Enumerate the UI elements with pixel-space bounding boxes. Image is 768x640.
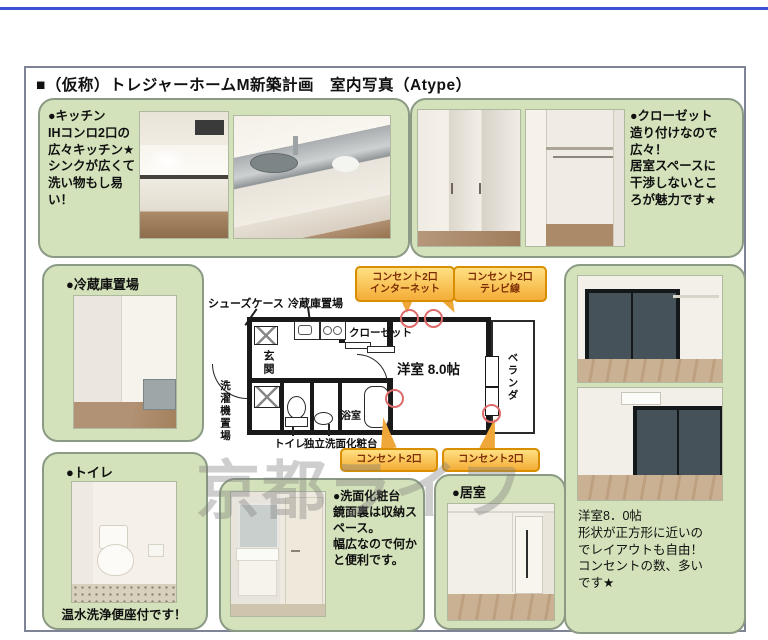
- closet-door-edge: [613, 110, 624, 246]
- hanger-rod: [553, 156, 618, 158]
- burner: [323, 326, 332, 335]
- floor: [231, 604, 325, 616]
- room-size-label: 洋室 8.0帖: [397, 358, 460, 378]
- burner: [333, 326, 342, 335]
- range-hood: [195, 120, 225, 135]
- photo-closet-open: [526, 110, 624, 246]
- outlet-mark: [400, 309, 419, 328]
- floor: [418, 231, 520, 246]
- toilet-caption: 温水洗浄便座付です！: [48, 604, 200, 623]
- kitchen-stove: [320, 321, 346, 340]
- photo-fridge-spot: [74, 296, 176, 428]
- floor: [72, 584, 176, 602]
- closet-plan-label: クローゼット: [349, 325, 412, 340]
- sink: [250, 153, 299, 173]
- photo-kitchen-sink: [234, 116, 390, 238]
- photo-washbasin: [231, 492, 325, 616]
- toilet-label: ●トイレ: [66, 462, 113, 481]
- floor: [578, 475, 722, 500]
- door-handle: [451, 183, 453, 194]
- paper-holder: [148, 544, 164, 557]
- vanity-bowl: [314, 412, 333, 425]
- photo-room-window-b: [578, 388, 722, 500]
- faucet: [293, 136, 298, 156]
- toilet-bowl: [287, 396, 306, 419]
- ceiling-line: [448, 511, 554, 513]
- toilet-base: [285, 417, 308, 427]
- washer-label: 洗濯機置場: [218, 380, 233, 443]
- shoe-cabinet: [254, 326, 278, 345]
- washbasin-panel: ●洗面化粧台 鏡面裏は収納ス ペース。 幅広なので何か と便利です。: [219, 478, 425, 632]
- wall: [280, 383, 284, 430]
- window: [633, 406, 722, 483]
- floor: [578, 359, 722, 382]
- closet-slide-door: [367, 346, 395, 353]
- photo-toilet: [72, 482, 176, 602]
- wall: [310, 383, 314, 430]
- flyer-frame: ■（仮称）トレジャーホームM新築計画 室内写真（Atype） ●キッチン IHコ…: [24, 66, 746, 632]
- living-panel: ●居室: [434, 474, 566, 630]
- bath-label: 浴室: [341, 407, 361, 422]
- fridge-panel: ●冷蔵庫置場: [42, 264, 204, 442]
- door-handle: [291, 550, 299, 552]
- door: [515, 516, 544, 595]
- living-label: ●居室: [452, 482, 486, 501]
- window-mullion: [631, 293, 633, 361]
- floor: [448, 594, 554, 620]
- kitchen-sink: [294, 321, 320, 340]
- window-mullion: [677, 410, 679, 479]
- callout-outlet-right: コンセント2口: [442, 448, 540, 472]
- toilet-plan-label: トイレ: [274, 436, 306, 451]
- photo-kitchen-full: [140, 112, 228, 238]
- outlet-mark: [482, 404, 501, 423]
- floorplan: シューズケース 冷蔵庫置場 ベランダ: [200, 262, 552, 476]
- floorplan-fridge-label: 冷蔵庫置場: [288, 295, 343, 311]
- ih-plate: [332, 156, 359, 172]
- entrance-label: 玄関: [260, 350, 276, 376]
- window-mullion: [486, 386, 498, 388]
- toilet-panel: ●トイレ 温水洗浄便座付です！: [42, 452, 208, 630]
- closet-note: ●クローゼット 造り付けなので 広々！ 居室スペースに 干渉しないとこ ろが魅力…: [630, 108, 736, 209]
- closet-door: [526, 110, 547, 246]
- floorplan-shoes-label: シューズケース: [208, 295, 284, 311]
- top-accent-line: [0, 7, 768, 10]
- washer-space: [254, 386, 280, 408]
- callout-outlet-left: コンセント2口: [340, 448, 438, 472]
- light-glow: [147, 147, 187, 175]
- washbasin-note: ●洗面化粧台 鏡面裏は収納ス ペース。 幅広なので何か と便利です。: [333, 488, 419, 568]
- air-conditioner: [621, 392, 660, 404]
- room-note: 洋室8．0帖 形状が正方形に近いの でレイアウトも自由！ コンセントの数、多い …: [578, 508, 738, 592]
- shelf-line: [673, 295, 719, 298]
- outlet-mark: [424, 309, 443, 328]
- sink-edge: [143, 379, 176, 410]
- door: [285, 497, 324, 608]
- kitchen-panel: ●キッチン IHコンロ2口の 広々キッチン★ シンクが広くて 洗い物もし易 い！: [38, 98, 410, 258]
- door-handle: [479, 183, 481, 194]
- toilet-bowl: [97, 544, 134, 576]
- wall-corner: [121, 296, 122, 402]
- page-title: ■（仮称）トレジャーホームM新築計画 室内写真（Atype）: [36, 73, 472, 95]
- basin-counter: [236, 548, 279, 561]
- photo-closet-closed: [418, 110, 520, 246]
- mirror: [238, 503, 280, 549]
- fridge-label: ●冷蔵庫置場: [66, 274, 139, 293]
- outlet-mark: [385, 389, 404, 408]
- photo-room-window-a: [578, 276, 722, 382]
- wall-panel: [543, 513, 554, 594]
- window: [585, 289, 679, 365]
- door-handle: [526, 530, 528, 579]
- callout-tv: コンセント2口 テレビ線: [453, 266, 547, 302]
- vanity-cabinet: [238, 560, 278, 595]
- wall-corner: [512, 511, 513, 592]
- callout-internet: コンセント2口 インターネット: [355, 266, 455, 302]
- balcony-label: ベランダ: [506, 352, 521, 402]
- leader-line: [292, 427, 294, 436]
- leader-line: [328, 424, 330, 436]
- sink-basin: [298, 325, 312, 335]
- room-panel: 洋室8．0帖 形状が正方形に近いの でレイアウトも自由！ コンセントの数、多い …: [564, 264, 746, 634]
- photo-living: [448, 504, 554, 620]
- closet-panel: ●クローゼット 造り付けなので 広々！ 居室スペースに 干渉しないとこ ろが魅力…: [410, 98, 744, 258]
